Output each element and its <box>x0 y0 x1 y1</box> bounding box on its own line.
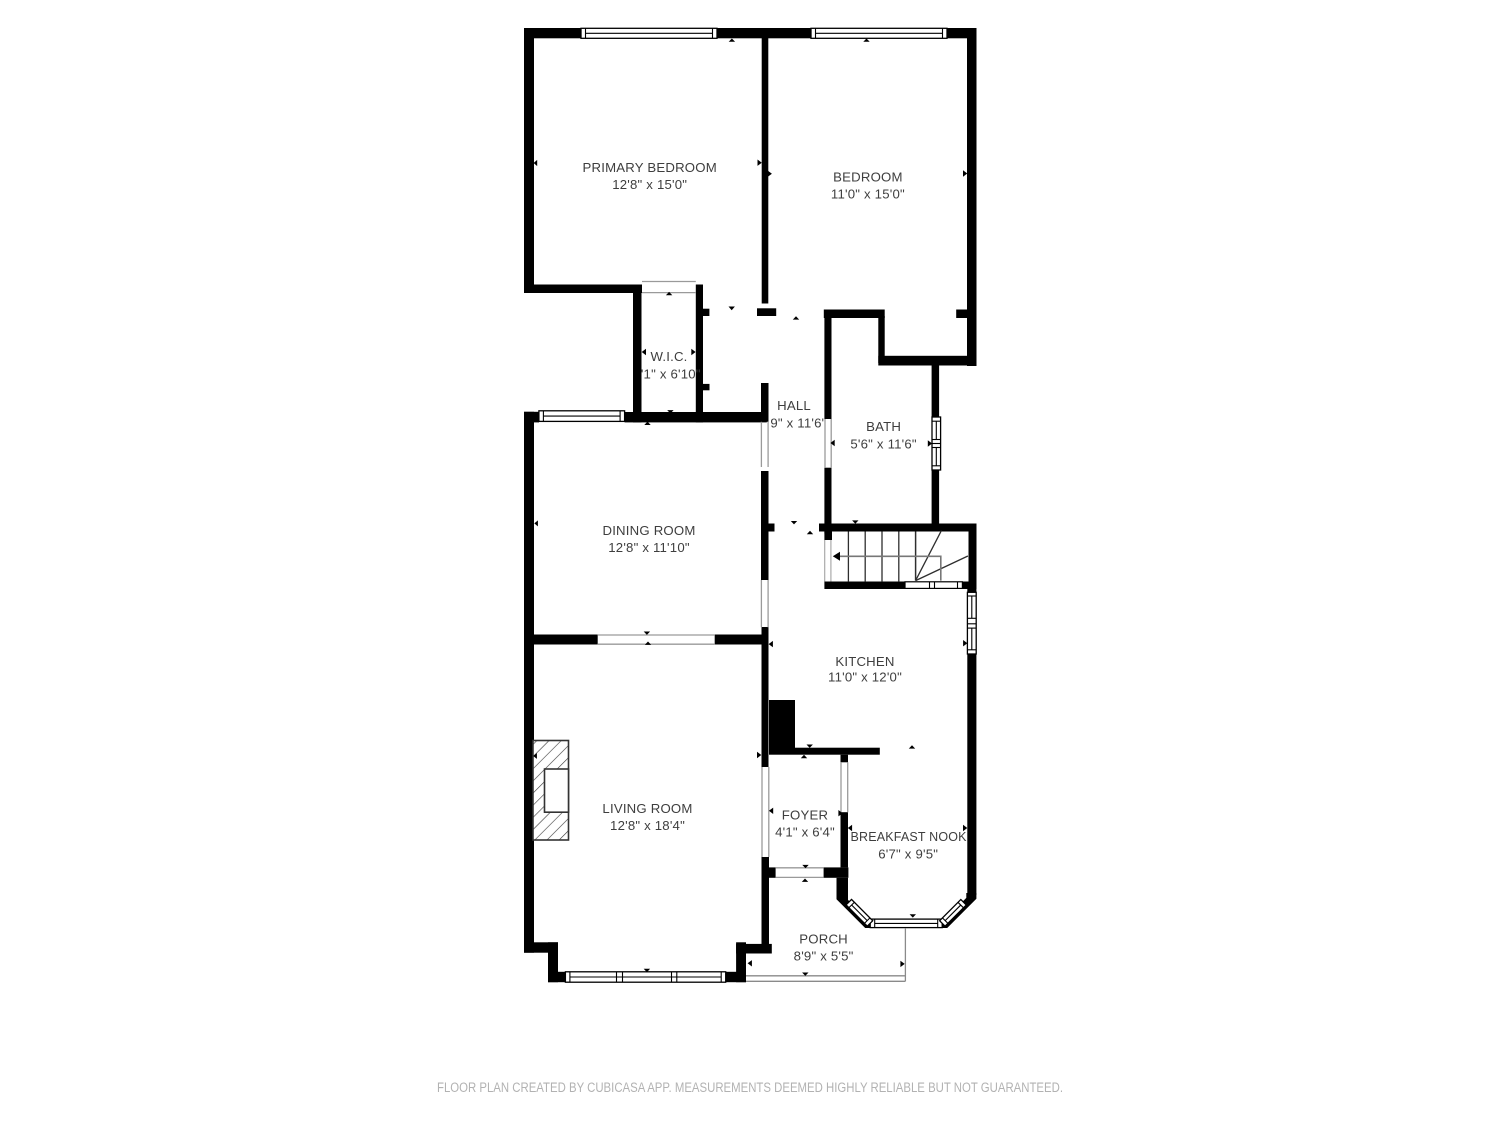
svg-text:12'8" x 18'4": 12'8" x 18'4" <box>610 818 685 833</box>
svg-text:KITCHEN: KITCHEN <box>835 654 894 669</box>
svg-text:11'0" x 12'0": 11'0" x 12'0" <box>828 670 902 685</box>
svg-text:BEDROOM: BEDROOM <box>833 170 903 185</box>
svg-text:FOYER: FOYER <box>782 808 828 823</box>
svg-text:3'9" x 11'6": 3'9" x 11'6" <box>760 415 827 430</box>
svg-text:3'1" x 6'10": 3'1" x 6'10" <box>633 367 701 382</box>
svg-text:4'1" x 6'4": 4'1" x 6'4" <box>775 825 835 840</box>
svg-text:BATH: BATH <box>866 419 901 434</box>
svg-text:BREAKFAST NOOK: BREAKFAST NOOK <box>851 829 967 844</box>
svg-text:12'8" x 11'10": 12'8" x 11'10" <box>608 540 690 555</box>
svg-text:PORCH: PORCH <box>799 932 848 947</box>
svg-text:HALL: HALL <box>777 398 811 413</box>
svg-text:12'8" x 15'0": 12'8" x 15'0" <box>612 177 687 192</box>
svg-text:LIVING ROOM: LIVING ROOM <box>602 801 692 816</box>
svg-text:11'0" x 15'0": 11'0" x 15'0" <box>831 187 905 202</box>
svg-text:6'7" x 9'5": 6'7" x 9'5" <box>878 847 938 862</box>
svg-text:DINING ROOM: DINING ROOM <box>602 523 695 538</box>
svg-text:8'9" x 5'5": 8'9" x 5'5" <box>794 948 854 963</box>
svg-text:FLOOR PLAN CREATED BY CUBICASA: FLOOR PLAN CREATED BY CUBICASA APP. MEAS… <box>437 1080 1063 1095</box>
svg-text:PRIMARY BEDROOM: PRIMARY BEDROOM <box>582 160 716 175</box>
svg-text:W.I.C.: W.I.C. <box>650 349 687 364</box>
svg-text:5'6" x 11'6": 5'6" x 11'6" <box>850 436 917 451</box>
